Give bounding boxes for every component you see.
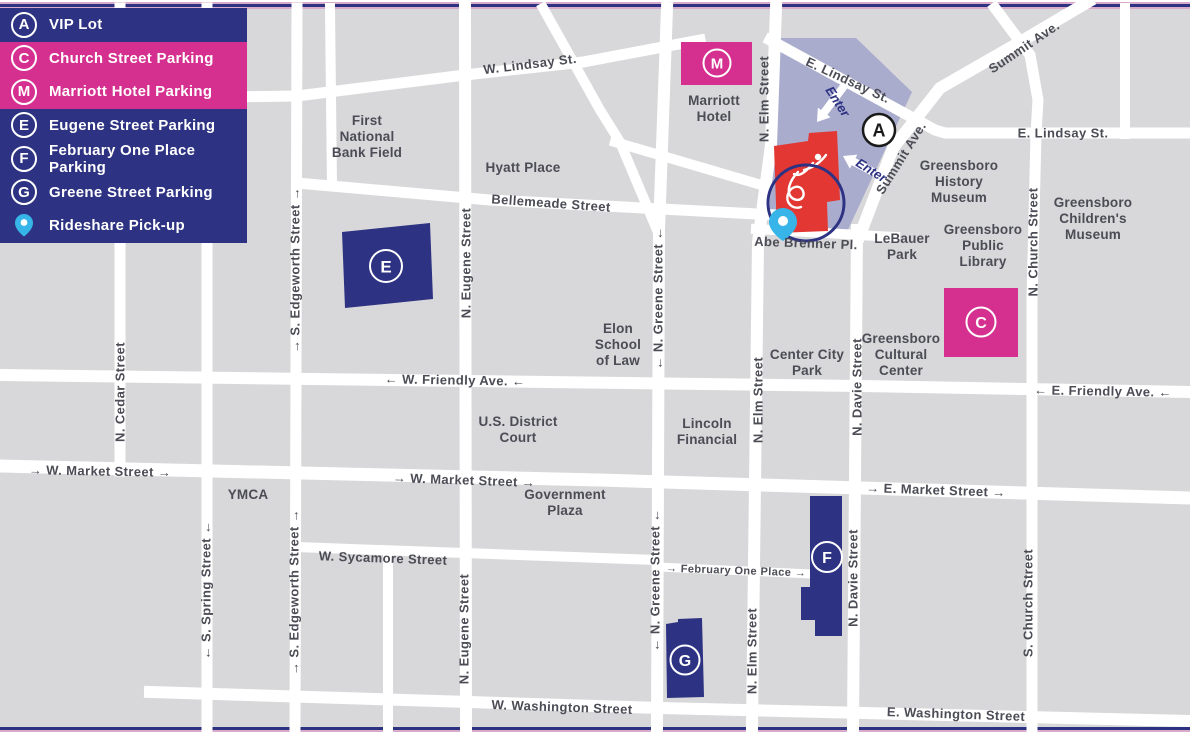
legend-label: Rideshare Pick-up <box>49 217 185 234</box>
svg-text:A: A <box>873 121 886 141</box>
legend-label: VIP Lot <box>49 16 103 33</box>
marker-a-icon: A <box>11 12 37 38</box>
legend-item-greene-street: G Greene Street Parking <box>0 176 247 210</box>
svg-text:G: G <box>679 653 691 670</box>
svg-text:C: C <box>975 315 987 332</box>
marker-c-icon: C <box>11 45 37 71</box>
svg-text:M: M <box>711 56 724 73</box>
parking-map: Enter Enter A E C M <box>0 0 1190 735</box>
svg-text:E: E <box>380 258 391 277</box>
marker-m-icon: M <box>11 79 37 105</box>
marker-f-icon: F <box>11 146 37 172</box>
marker-a: A <box>863 114 895 146</box>
legend-label: Greene Street Parking <box>49 184 213 201</box>
legend-label: Eugene Street Parking <box>49 117 215 134</box>
marker-e-icon: E <box>11 112 37 138</box>
legend-item-rideshare: Rideshare Pick-up <box>0 209 247 243</box>
legend-item-eugene-street: E Eugene Street Parking <box>0 109 247 143</box>
legend-label: Church Street Parking <box>49 50 214 67</box>
legend-item-february-one-place: F February One Place Parking <box>0 142 247 176</box>
marker-g-icon: G <box>11 179 37 205</box>
legend-label: February One Place Parking <box>49 142 247 176</box>
legend-item-church-street: C Church Street Parking <box>0 42 247 76</box>
rideshare-pin-icon <box>11 213 37 239</box>
legend-label: Marriott Hotel Parking <box>49 83 212 100</box>
legend-item-vip-lot: A VIP Lot <box>0 8 247 42</box>
legend-item-marriott-hotel: M Marriott Hotel Parking <box>0 75 247 109</box>
svg-text:F: F <box>822 550 832 567</box>
legend-panel: A VIP Lot C Church Street Parking M Marr… <box>0 8 247 243</box>
